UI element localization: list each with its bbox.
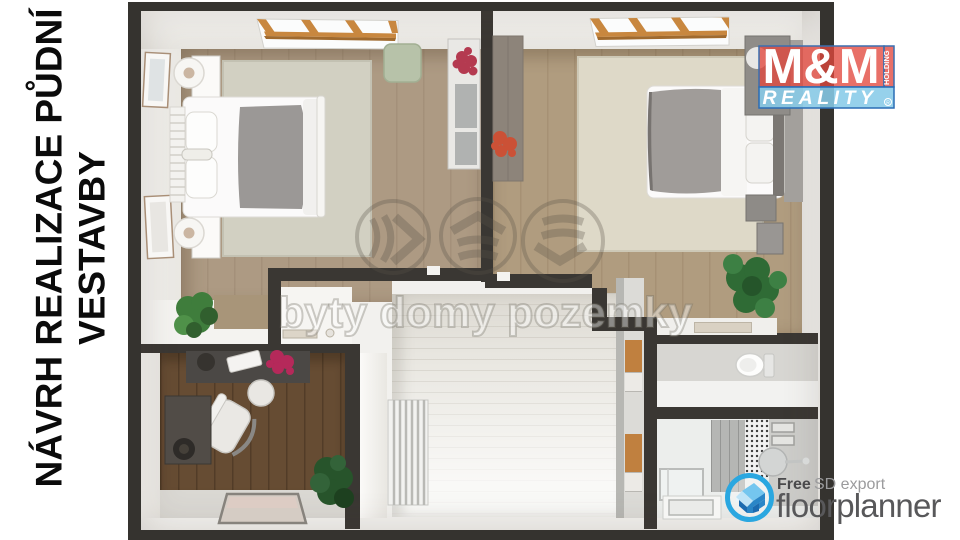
svg-text:REALITY: REALITY xyxy=(763,87,878,109)
svg-text:M&M: M&M xyxy=(762,40,879,94)
svg-text:floorplanner: floorplanner xyxy=(776,487,941,524)
svg-text:HOLDING: HOLDING xyxy=(882,50,891,85)
svg-text:R: R xyxy=(886,101,890,107)
